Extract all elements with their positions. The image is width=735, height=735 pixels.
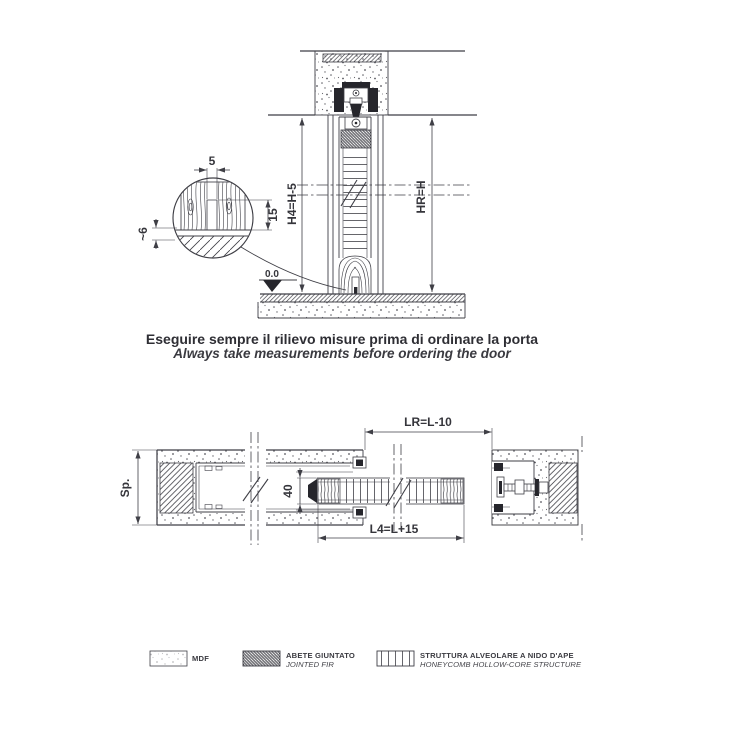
legend-item-honeycomb: STRUTTURA ALVEOLARE A NIDO D'APE HONEYCO…	[377, 651, 582, 669]
mdf-label: MDF	[192, 654, 209, 663]
floor-level-marker: 0.0	[259, 269, 297, 292]
detail-circle: 5 15 ~6	[136, 154, 346, 290]
floor-guide	[354, 287, 357, 294]
closing-jamb	[492, 436, 582, 541]
note-italian: Eseguire sempre il rilievo misure prima …	[146, 331, 538, 347]
technical-drawing: 0.0 H4=H-5 HR=H	[0, 0, 735, 735]
honeycomb-core-vertical	[344, 152, 368, 252]
legend-item-jointed-fir: ABETE GIUNTATO JOINTED FIR	[243, 651, 355, 669]
groove-width-label: 5	[209, 154, 216, 168]
door-end-jointed-fir-left	[318, 479, 340, 503]
honeycomb-swatch	[377, 651, 414, 666]
leading-edge-bumper	[308, 479, 317, 503]
door-measurement-sheet: 0.0 H4=H-5 HR=H	[0, 0, 735, 735]
horizontal-section: Sp. 40 LR=L-10 L4=L+15	[118, 415, 582, 545]
pocket-end-wood-block	[160, 463, 193, 513]
floor-clearance-label: ~6	[136, 227, 150, 241]
honeycomb-label-it: STRUTTURA ALVEOLARE A NIDO D'APE	[420, 651, 574, 660]
door-thickness-label: 40	[281, 484, 295, 498]
door-leaf-vertical	[339, 117, 371, 294]
door-width-label: L4=L+15	[370, 522, 419, 536]
groove-detail	[207, 200, 217, 230]
measurement-note: Eseguire sempre il rilievo misure prima …	[146, 331, 538, 361]
door-end-jointed-fir-right	[441, 479, 463, 503]
jointed-fir-swatch	[243, 651, 280, 666]
honeycomb-label-en: HONEYCOMB HOLLOW-CORE STRUCTURE	[420, 660, 582, 669]
lintel-hatch	[323, 54, 381, 62]
jointed-fir-label-it: ABETE GIUNTATO	[286, 651, 355, 660]
vertical-section: 0.0 H4=H-5 HR=H	[136, 51, 477, 318]
floor	[258, 294, 465, 318]
level-triangle-icon	[263, 280, 282, 292]
legend-item-mdf: MDF	[150, 651, 209, 666]
note-english: Always take measurements before ordering…	[172, 346, 511, 361]
top-rail-jointed-fir	[341, 130, 371, 148]
opening-height-label: HR=H	[414, 180, 428, 213]
wall-thickness-label: Sp.	[118, 479, 132, 498]
clear-passage-label: LR=L-10	[404, 415, 452, 429]
groove-depth-label: 15	[266, 208, 280, 222]
jointed-fir-label-en: JOINTED FIR	[285, 660, 334, 669]
legend: MDF ABETE GIUNTATO JOINTED FIR STRUTTURA…	[150, 651, 582, 669]
jamb-wood-block	[549, 463, 577, 513]
detail-leader-line	[241, 247, 346, 290]
door-height-label: H4=H-5	[285, 183, 299, 225]
break-lines-vertical	[297, 180, 471, 208]
floor-level-label: 0.0	[265, 269, 279, 280]
